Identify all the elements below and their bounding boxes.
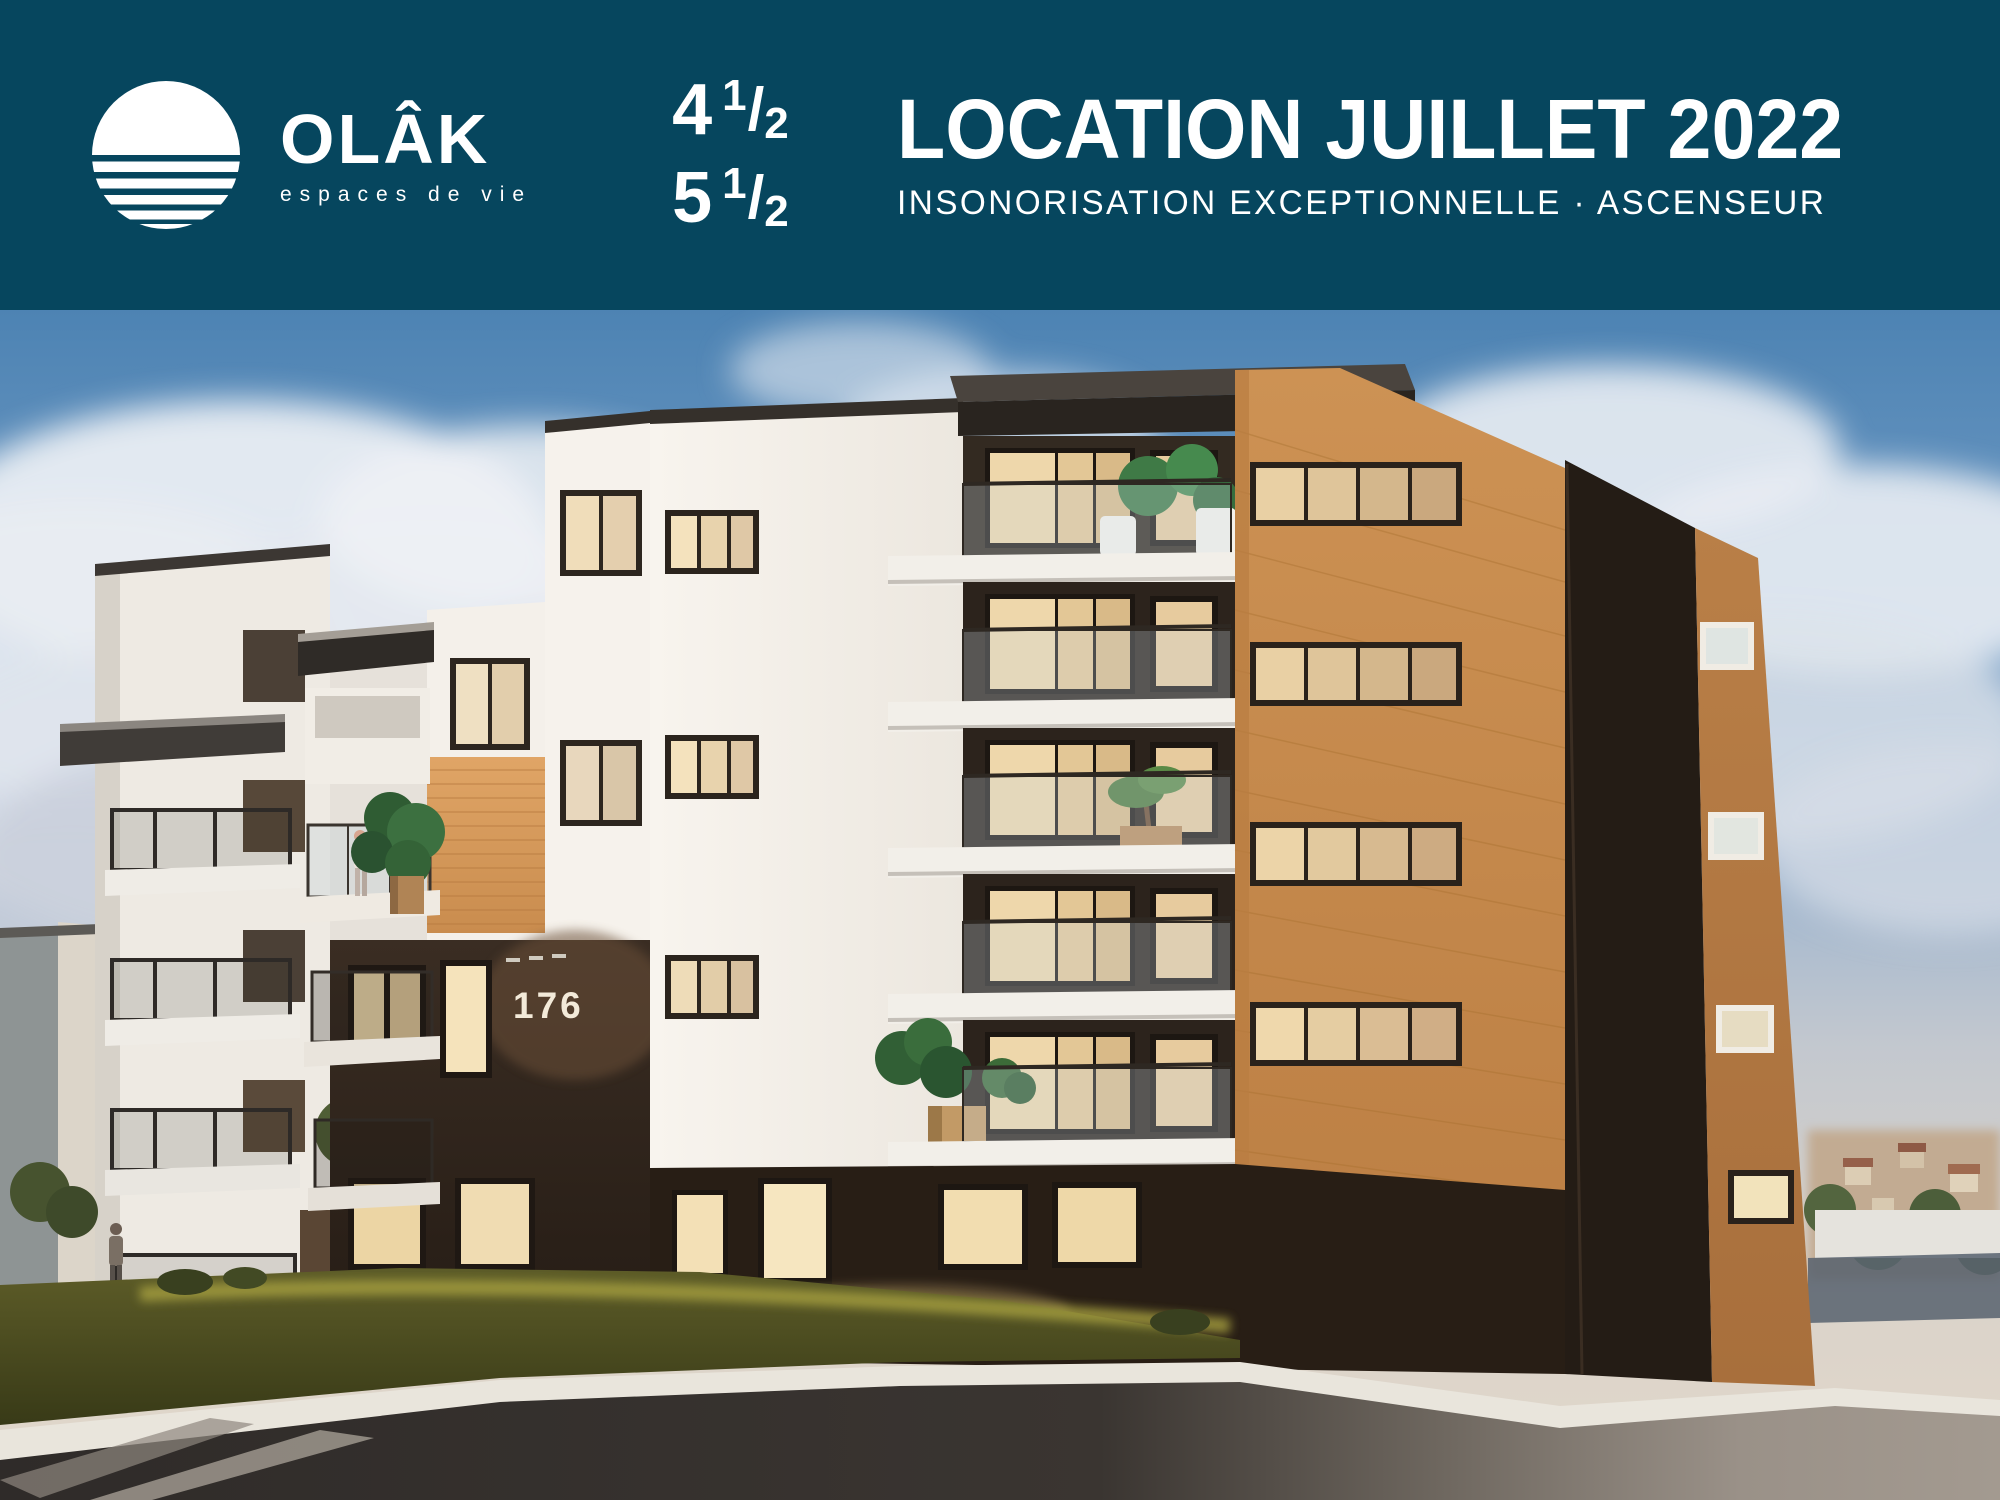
sunset-over-water-icon — [92, 81, 240, 229]
logo-text: OLÂK espaces de vie — [280, 104, 532, 207]
logo: OLÂK espaces de vie — [92, 81, 532, 229]
fraction-slash: / — [748, 76, 765, 143]
brand-tagline: espaces de vie — [280, 183, 532, 207]
distant-hillside — [1804, 1130, 2000, 1323]
unit-whole: 4 — [672, 70, 712, 150]
main-title: LOCATION JUILLET 2022 — [897, 87, 1843, 171]
headline: LOCATION JUILLET 2022 INSONORISATION EXC… — [897, 87, 1904, 223]
rental-ad-poster: OLÂK espaces de vie 41/2 51/2 LOCATION J… — [0, 0, 2000, 1500]
scene-svg: 176 — [0, 310, 2000, 1500]
brand-name: OLÂK — [280, 104, 532, 174]
unit-size-5half: 51/2 — [672, 155, 789, 243]
unit-denominator: 2 — [764, 99, 788, 148]
fraction-slash: / — [748, 164, 765, 231]
subtitle: INSONORISATION EXCEPTIONNELLE · ASCENSEU… — [897, 184, 1883, 223]
unit-numerator: 1 — [722, 71, 746, 120]
wood-band-left — [427, 757, 545, 933]
unit-whole: 5 — [672, 158, 712, 238]
unit-numerator: 1 — [722, 159, 746, 208]
unit-size-4half: 41/2 — [672, 67, 789, 155]
unit-denominator: 2 — [764, 187, 788, 236]
unit-sizes: 41/2 51/2 — [672, 67, 789, 243]
dark-corner-band — [1565, 460, 1712, 1382]
header-banner: OLÂK espaces de vie 41/2 51/2 LOCATION J… — [0, 0, 2000, 310]
building-number: 176 — [513, 985, 584, 1026]
building-render: 176 — [0, 310, 2000, 1500]
